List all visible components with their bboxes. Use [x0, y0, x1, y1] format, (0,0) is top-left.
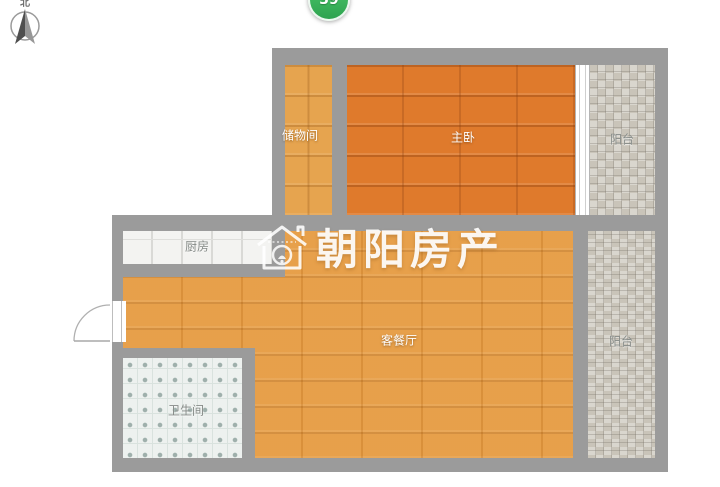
wall-middle [112, 215, 668, 231]
north-compass-icon: 北 [4, 0, 48, 53]
room-label-balcony-bottom: 阳台 [609, 333, 633, 350]
balcony-window [575, 65, 590, 215]
room-label-master-bedroom: 主卧 [451, 129, 475, 146]
wall-bathroom-top [112, 348, 255, 358]
room-label-kitchen: 厨房 [185, 238, 209, 255]
wall-living-balcony-divider [573, 231, 588, 458]
wall-top [272, 48, 668, 65]
wall-storage-bedroom-divider [332, 65, 347, 215]
room-label-living-dining: 客餐厅 [381, 332, 417, 349]
room-label-bathroom: 卫生间 [168, 402, 204, 419]
wall-upper-left [272, 48, 285, 277]
entrance-door-swing [60, 290, 130, 352]
room-label-balcony-top: 阳台 [610, 131, 634, 148]
wall-kitchen-bottom [112, 264, 285, 277]
map-cluster-badge[interactable]: 39 [308, 0, 350, 21]
badge-count: 39 [319, 0, 338, 8]
room-label-storage: 储物间 [282, 127, 318, 144]
floorplan-canvas: 储物间 主卧 阳台 厨房 客餐厅 卫生间 阳台 朝阳房产 39 北 [0, 0, 720, 487]
wall-right [655, 48, 668, 472]
wall-bathroom-right [242, 348, 255, 458]
wall-bottom [112, 458, 668, 472]
compass-north-label: 北 [20, 0, 30, 9]
